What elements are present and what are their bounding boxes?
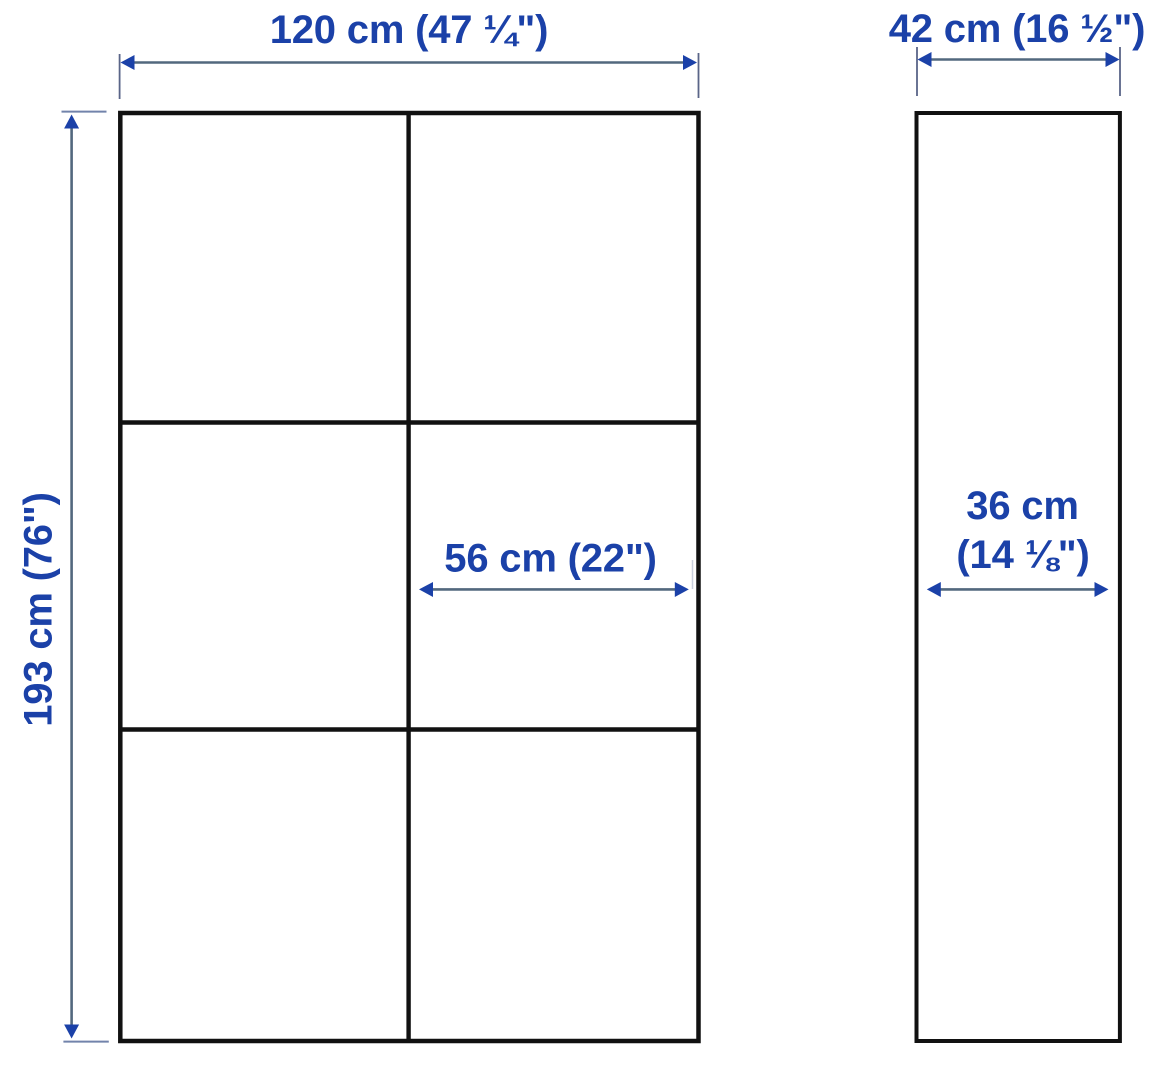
svg-text:193 cm (76"): 193 cm (76"): [17, 492, 61, 726]
svg-text:(14 ⅛"): (14 ⅛"): [956, 533, 1089, 577]
svg-text:42 cm (16 ½"): 42 cm (16 ½"): [889, 7, 1146, 51]
svg-text:36 cm: 36 cm: [966, 484, 1078, 528]
svg-text:120 cm (47 ¼"): 120 cm (47 ¼"): [270, 8, 549, 52]
svg-text:56 cm (22"): 56 cm (22"): [444, 537, 656, 581]
